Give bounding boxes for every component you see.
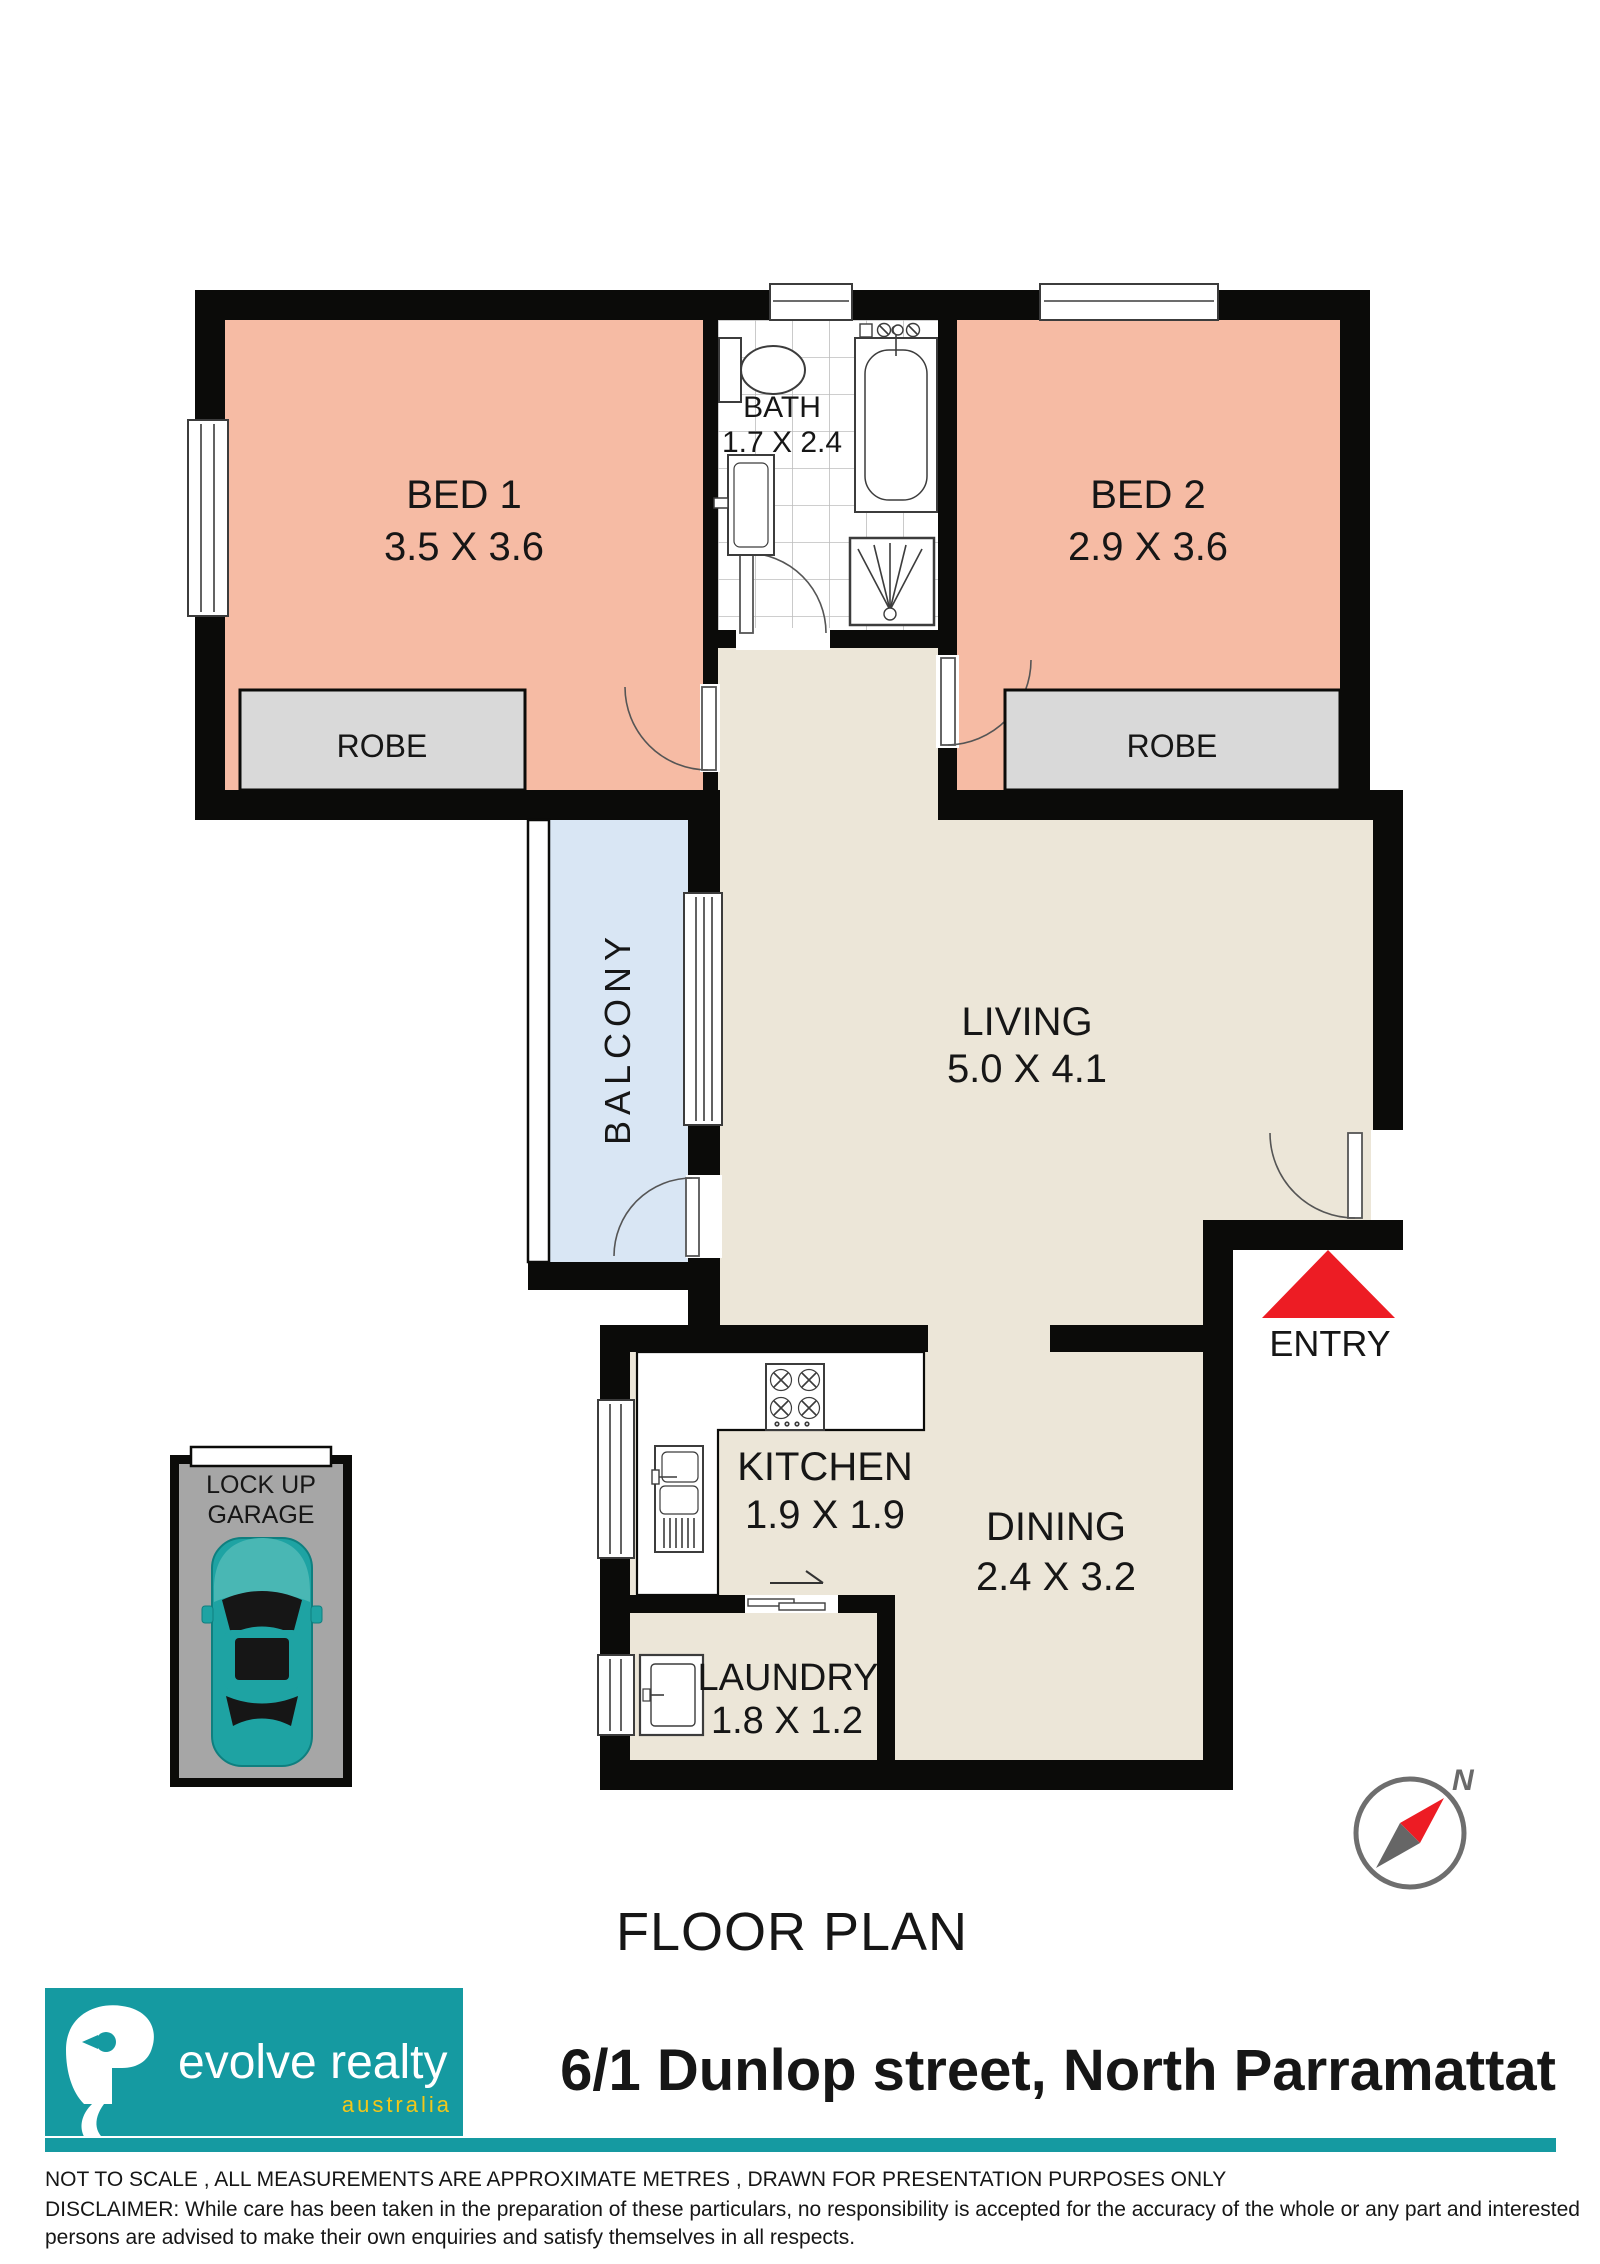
bed1-window-icon: [188, 420, 228, 616]
garage-door-icon: [191, 1447, 331, 1466]
bath-top-window-icon: [770, 284, 852, 320]
compass-icon: N: [1356, 1764, 1475, 1887]
footer-line-1: NOT TO SCALE , ALL MEASUREMENTS ARE APPR…: [45, 2168, 1226, 2191]
footer-line-2: DISCLAIMER: While care has been taken in…: [45, 2198, 1580, 2221]
living-dining-opening: [928, 1325, 1050, 1352]
shower-icon: [850, 538, 934, 625]
bath-door-icon: [740, 553, 753, 633]
laundry-slider-door-icon: [745, 1595, 838, 1613]
dining-label: DINING: [986, 1505, 1126, 1549]
balcony-door-icon: [686, 1178, 699, 1256]
bed2-label: BED 2: [1090, 473, 1206, 517]
laundry-dims: 1.8 X 1.2: [711, 1700, 863, 1742]
entry-arrow-icon: [1262, 1250, 1395, 1318]
bed1-label: BED 1: [406, 473, 522, 517]
disclaimer: NOT TO SCALE , ALL MEASUREMENTS ARE APPR…: [45, 2168, 1580, 2249]
kitchen-window-icon: [598, 1400, 634, 1558]
balcony-label: BALCONY: [597, 931, 638, 1145]
bed2-dims: 2.9 X 3.6: [1068, 525, 1228, 569]
garage-label-line1: LOCK UP: [206, 1471, 316, 1499]
floor-plan-canvas: BED 1 3.5 X 3.6 BED 2 2.9 X 3.6 BATH 1.7…: [0, 0, 1600, 2264]
page-title: FLOOR PLAN: [616, 1902, 968, 1962]
car-icon: [202, 1538, 322, 1766]
logo-block: evolve realty australia: [45, 1988, 463, 2152]
washing-machine-icon: [640, 1655, 703, 1735]
robe1-label: ROBE: [337, 728, 428, 764]
entry-label: ENTRY: [1269, 1323, 1390, 1364]
garage-label-line2: GARAGE: [208, 1501, 315, 1529]
bath-label: BATH: [743, 391, 821, 424]
living-label: LIVING: [961, 1000, 1092, 1044]
dining-dims: 2.4 X 3.2: [976, 1555, 1136, 1599]
laundry-window-icon: [598, 1655, 634, 1735]
brand-country: australia: [342, 2092, 452, 2117]
bathtub-icon: [855, 326, 937, 512]
kitchen-sink-icon: [652, 1446, 703, 1552]
entry-door-opening: [1371, 1130, 1405, 1220]
floor-plan-page: BED 1 3.5 X 3.6 BED 2 2.9 X 3.6 BATH 1.7…: [0, 0, 1600, 2264]
bed1-door-icon: [702, 687, 716, 770]
bed2-top-window-icon: [1040, 284, 1218, 320]
robe2-label: ROBE: [1127, 728, 1218, 764]
brand-name: evolve realty: [178, 2036, 447, 2089]
kitchen-label: KITCHEN: [737, 1445, 913, 1489]
bath-dims: 1.7 X 2.4: [722, 426, 842, 459]
divider-bar: [45, 2138, 1556, 2152]
entry-marker: ENTRY: [1262, 1250, 1395, 1364]
bed1-dims: 3.5 X 3.6: [384, 525, 544, 569]
compass-north-label: N: [1452, 1764, 1475, 1797]
property-address: 6/1 Dunlop street, North Parramattat: [560, 2038, 1556, 2103]
hall-floor: [718, 648, 938, 790]
bed2-door-icon: [941, 658, 955, 745]
entry-door-icon: [1348, 1133, 1362, 1218]
footer-line-3: persons are advised to make their own en…: [45, 2226, 855, 2249]
laundry-label: LAUNDRY: [698, 1657, 879, 1699]
kitchen-dims: 1.9 X 1.9: [745, 1493, 905, 1537]
stove-icon: [766, 1364, 824, 1430]
garage: LOCK UP GARAGE: [170, 1447, 352, 1787]
living-dims: 5.0 X 4.1: [947, 1047, 1107, 1091]
balcony-slider-window-icon: [684, 893, 722, 1125]
balcony-railing: [528, 820, 549, 1262]
